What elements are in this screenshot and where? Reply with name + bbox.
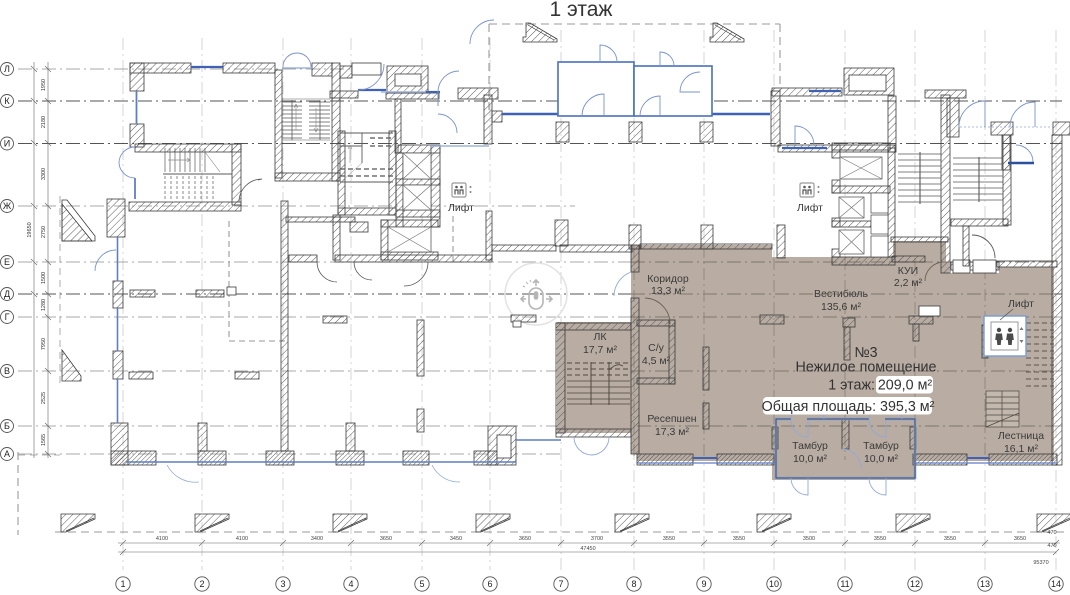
svg-text:2,2 м²: 2,2 м² bbox=[894, 277, 923, 289]
svg-text:Общая площадь: 395,3 м²: Общая площадь: 395,3 м² bbox=[762, 399, 935, 415]
svg-text:Лестница: Лестница bbox=[998, 430, 1044, 442]
svg-text:1280: 1280 bbox=[41, 299, 47, 311]
svg-text:2180: 2180 bbox=[41, 116, 47, 128]
svg-text:12: 12 bbox=[910, 579, 920, 589]
svg-text:4100: 4100 bbox=[236, 536, 248, 542]
svg-text:470: 470 bbox=[1047, 543, 1056, 549]
svg-text:7950: 7950 bbox=[41, 338, 47, 350]
svg-text:10,0 м²: 10,0 м² bbox=[864, 453, 899, 465]
svg-text:Коридор: Коридор bbox=[647, 273, 689, 285]
svg-text:95370: 95370 bbox=[1033, 560, 1048, 566]
svg-text:4100: 4100 bbox=[156, 536, 168, 542]
svg-text:13,3 м²: 13,3 м² bbox=[651, 285, 686, 297]
svg-text:17,7 м²: 17,7 м² bbox=[583, 344, 618, 356]
svg-text:Ресепшен: Ресепшен bbox=[647, 413, 696, 425]
svg-text:Вестибюль: Вестибюль bbox=[814, 288, 869, 300]
svg-text:Нежилое помещение: Нежилое помещение bbox=[796, 360, 937, 376]
svg-text:14: 14 bbox=[1051, 579, 1061, 589]
svg-text:Тамбур: Тамбур bbox=[792, 440, 828, 452]
svg-text:Д: Д bbox=[4, 289, 10, 299]
svg-text:3650: 3650 bbox=[380, 536, 392, 542]
svg-text:Лифт: Лифт bbox=[1008, 298, 1034, 310]
svg-text:3650: 3650 bbox=[519, 536, 531, 542]
svg-text:3550: 3550 bbox=[733, 536, 745, 542]
svg-text:3: 3 bbox=[280, 579, 285, 589]
svg-text:4: 4 bbox=[348, 579, 353, 589]
svg-text:3400: 3400 bbox=[311, 536, 323, 542]
svg-text:3500: 3500 bbox=[803, 536, 815, 542]
svg-text:Лифт: Лифт bbox=[797, 202, 823, 214]
svg-text:Б: Б bbox=[4, 421, 10, 431]
svg-text:В: В bbox=[4, 366, 10, 376]
svg-text:3700: 3700 bbox=[591, 536, 603, 542]
svg-text:ЛК: ЛК bbox=[593, 331, 607, 343]
svg-text:1: 1 bbox=[120, 579, 125, 589]
svg-text:Г: Г bbox=[5, 312, 10, 322]
svg-text:3550: 3550 bbox=[944, 536, 956, 542]
svg-text:11: 11 bbox=[840, 579, 849, 589]
svg-text:Тамбур: Тамбур bbox=[863, 440, 899, 452]
svg-text:КУИ: КУИ bbox=[898, 265, 918, 277]
svg-text:Лифт: Лифт bbox=[448, 202, 474, 214]
svg-text:Е: Е bbox=[4, 257, 10, 267]
svg-text:19650: 19650 bbox=[27, 222, 33, 237]
svg-text:47450: 47450 bbox=[580, 546, 595, 552]
svg-text:3300: 3300 bbox=[41, 168, 47, 180]
svg-text:1950: 1950 bbox=[41, 79, 47, 91]
svg-text:7: 7 bbox=[558, 579, 563, 589]
svg-text:3450: 3450 bbox=[450, 536, 462, 542]
svg-text:2750: 2750 bbox=[41, 226, 47, 238]
svg-text:3550: 3550 bbox=[663, 536, 675, 542]
svg-text:3550: 3550 bbox=[874, 536, 886, 542]
svg-text:Л: Л bbox=[4, 64, 10, 74]
svg-text:1500: 1500 bbox=[41, 272, 47, 284]
svg-text:2525: 2525 bbox=[41, 392, 47, 404]
svg-text:5: 5 bbox=[419, 579, 424, 589]
svg-text:9: 9 bbox=[701, 579, 706, 589]
svg-text:135,6 м²: 135,6 м² bbox=[821, 301, 861, 313]
svg-text:470: 470 bbox=[1047, 530, 1056, 536]
svg-text:1565: 1565 bbox=[41, 434, 47, 446]
svg-text:4,5 м²: 4,5 м² bbox=[642, 355, 671, 367]
svg-text:К: К bbox=[4, 96, 10, 106]
svg-text:8: 8 bbox=[631, 579, 636, 589]
svg-text:3650: 3650 bbox=[1014, 536, 1026, 542]
svg-text:209,0 м²: 209,0 м² bbox=[878, 378, 933, 394]
svg-text:10,0 м²: 10,0 м² bbox=[793, 453, 828, 465]
svg-text:Ж: Ж bbox=[3, 201, 12, 211]
svg-text:И: И bbox=[4, 139, 10, 149]
svg-text:С/у: С/у bbox=[648, 342, 665, 354]
svg-text:А: А bbox=[4, 449, 10, 459]
svg-text:16,1 м²: 16,1 м² bbox=[1004, 443, 1039, 455]
svg-text:1 этаж: 1 этаж bbox=[550, 0, 613, 21]
svg-text:17,3 м²: 17,3 м² bbox=[655, 426, 690, 438]
svg-text:6: 6 bbox=[487, 579, 492, 589]
svg-text:2: 2 bbox=[199, 579, 204, 589]
svg-text:1 этаж:: 1 этаж: bbox=[828, 378, 875, 394]
svg-text:13: 13 bbox=[980, 579, 990, 589]
svg-text:10: 10 bbox=[769, 579, 779, 589]
